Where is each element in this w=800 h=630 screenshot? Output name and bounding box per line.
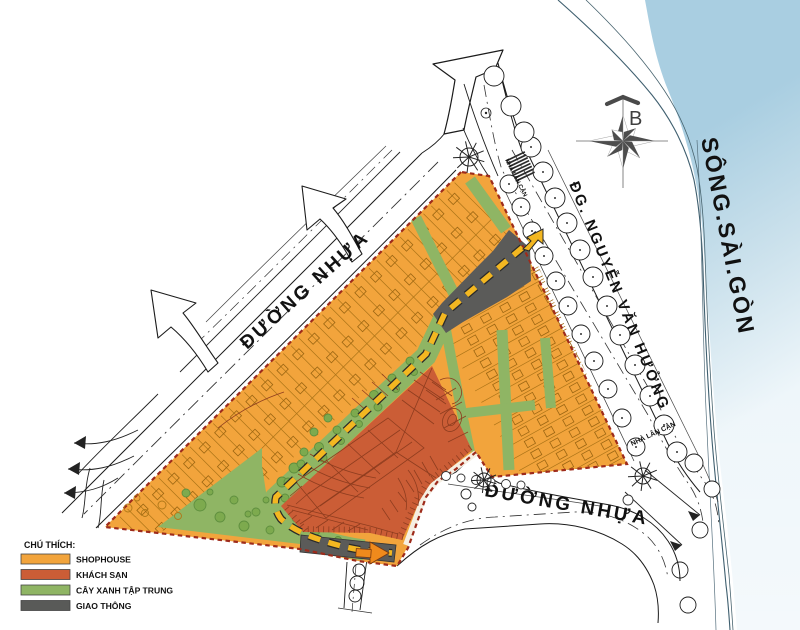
svg-text:GIAO THÔNG: GIAO THÔNG xyxy=(76,600,132,611)
svg-text:KHÁCH SẠN: KHÁCH SẠN xyxy=(76,570,128,580)
svg-text:CÂY XANH TẬP TRUNG: CÂY XANH TẬP TRUNG xyxy=(76,585,173,596)
svg-text:SHOPHOUSE: SHOPHOUSE xyxy=(76,555,131,565)
svg-text:CHÚ THÍCH:: CHÚ THÍCH: xyxy=(24,539,75,550)
svg-text:B: B xyxy=(629,108,642,130)
